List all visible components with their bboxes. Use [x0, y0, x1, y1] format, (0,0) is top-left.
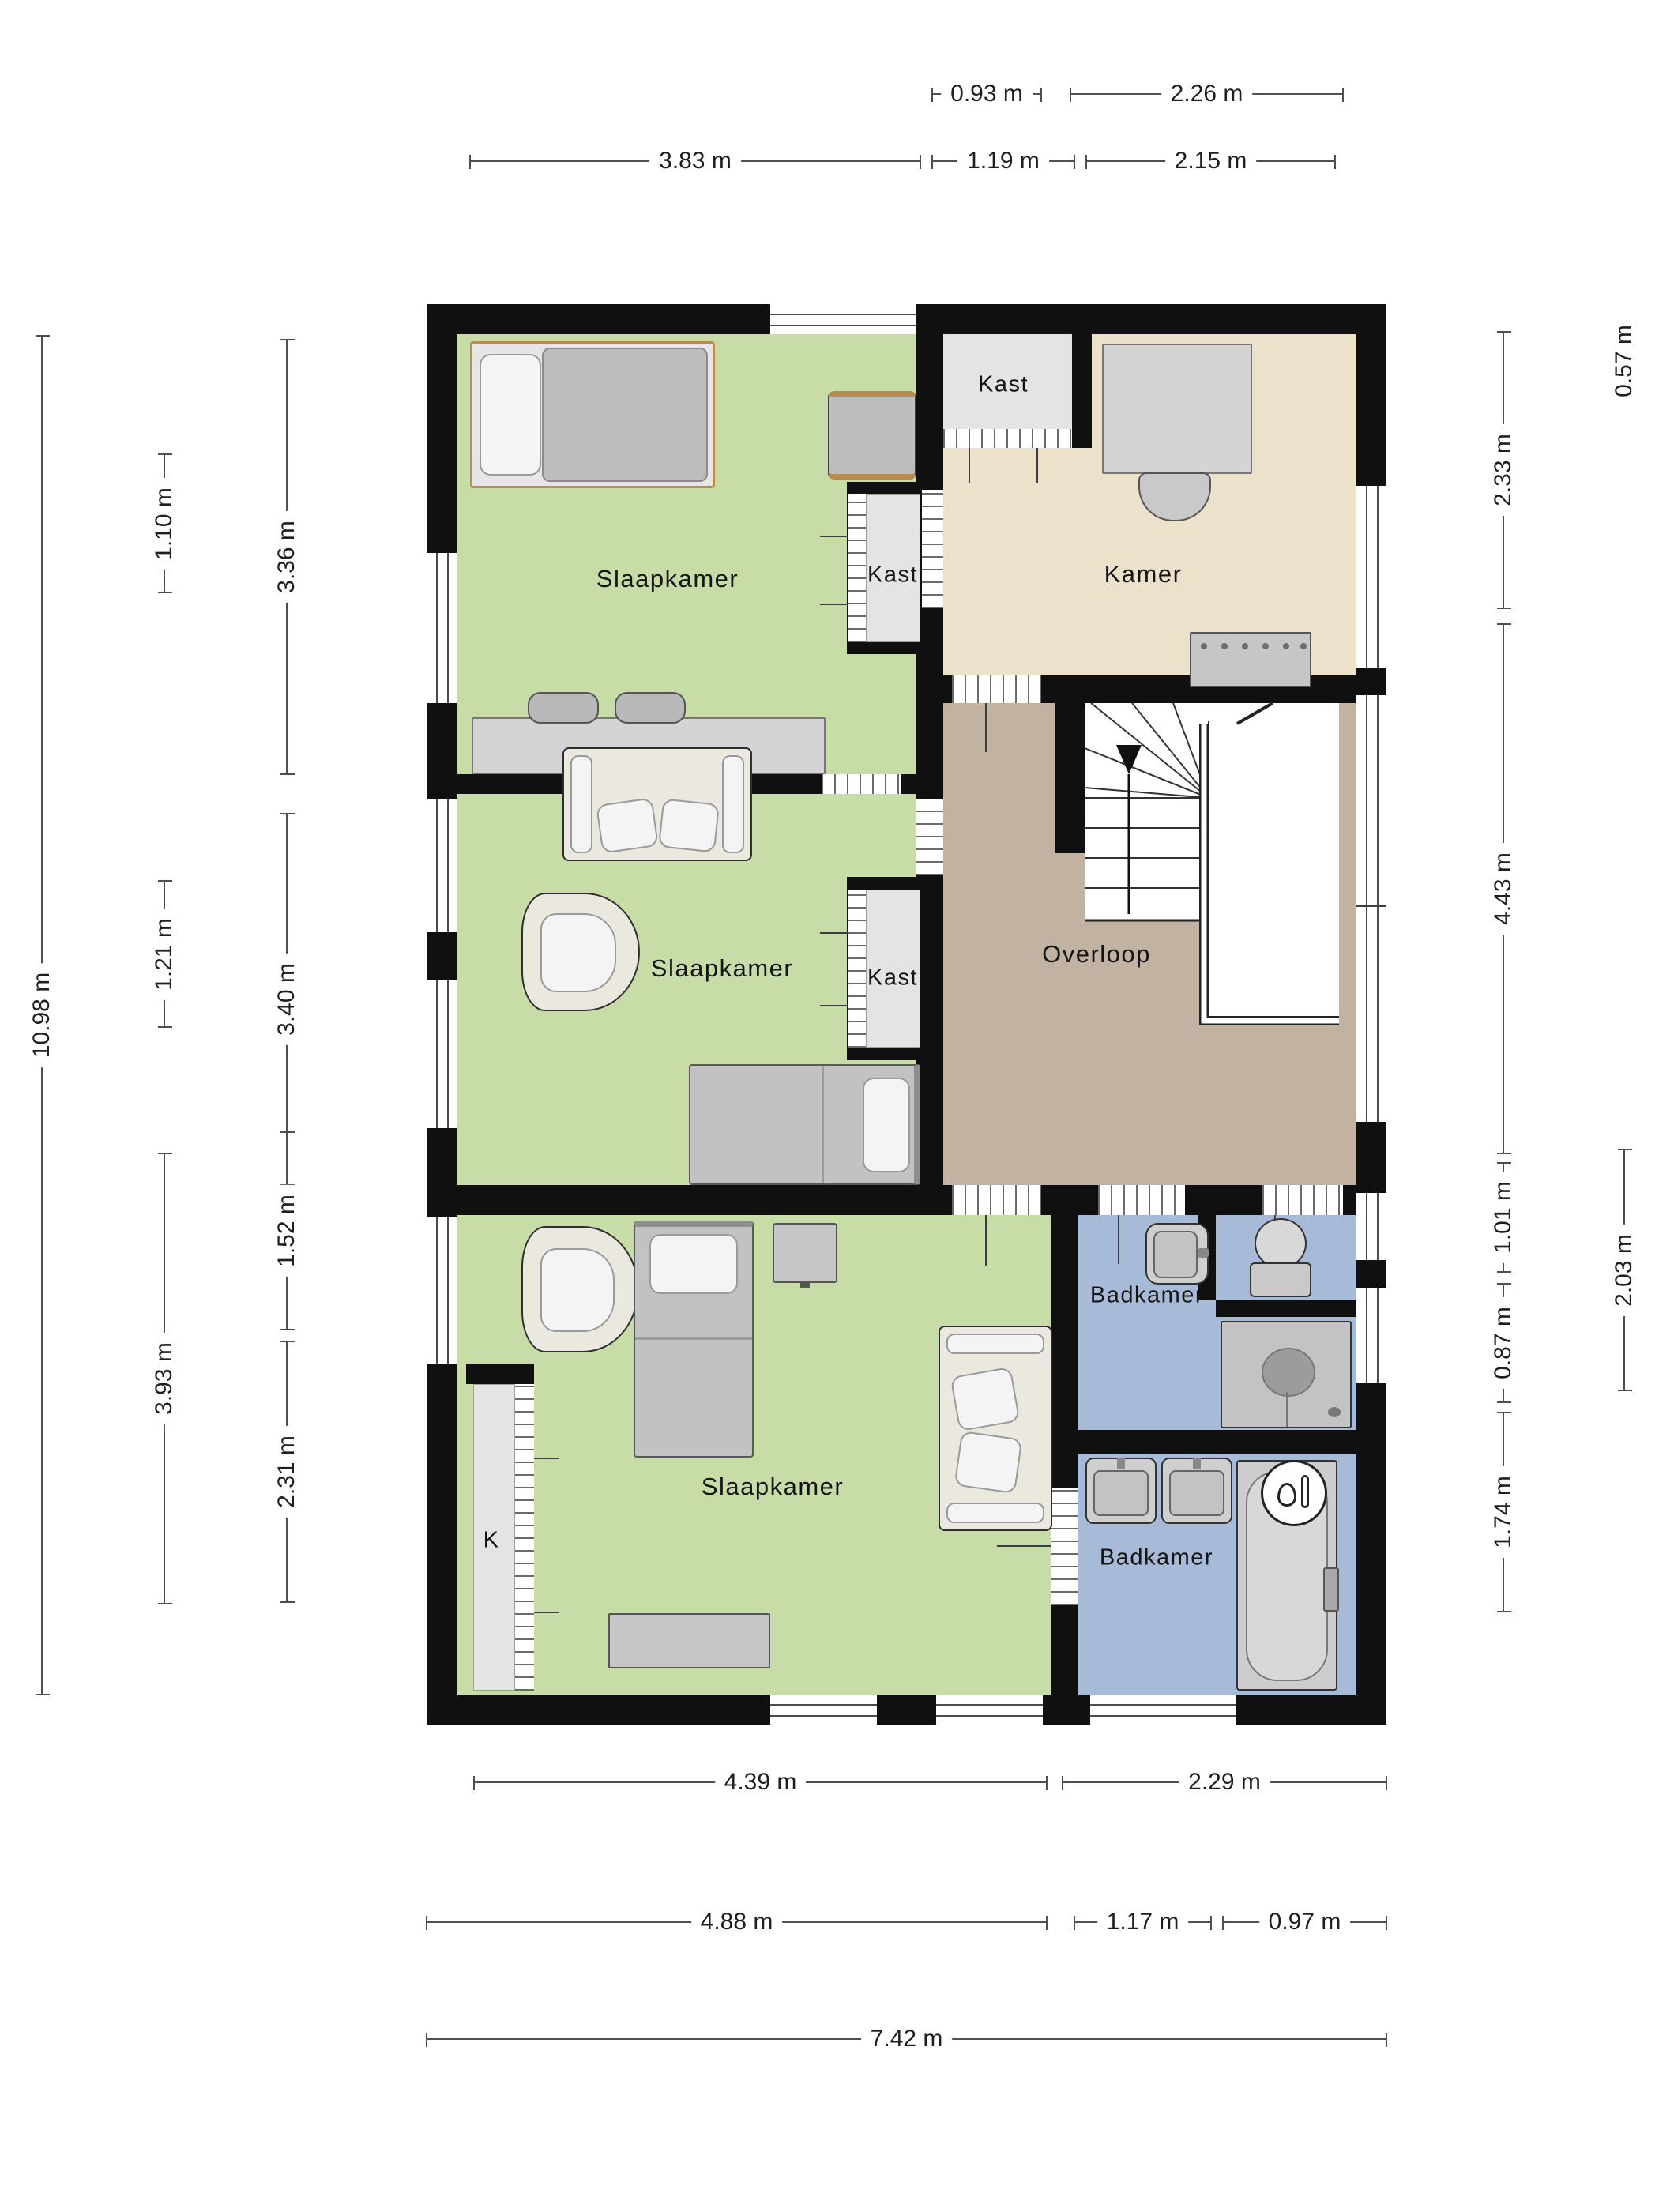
bed1-pillow [480, 354, 541, 476]
dim-1-10: 1.10 m [164, 454, 165, 592]
k-closet-door [515, 1384, 534, 1691]
dim-4-88: 4.88 m [427, 1921, 1047, 1923]
toilet-bowl [1255, 1218, 1307, 1269]
dim-2-33: 2.33 m [1503, 332, 1504, 608]
dim-2-29: 2.29 m [1063, 1781, 1386, 1783]
dim-10-98: 10.98 m [41, 336, 43, 1695]
dim-1-01: 1.01 m [1503, 1163, 1504, 1272]
window-left-1 [427, 553, 457, 703]
dim-0-97: 0.97 m [1223, 1921, 1386, 1923]
window-top-slaapkamer1 [770, 304, 916, 334]
dim-4-43: 4.43 m [1503, 624, 1504, 1153]
dim-2-03: 2.03 m [1623, 1149, 1625, 1390]
dim-4-39: 4.39 m [474, 1781, 1047, 1783]
label-slaapkamer1: Slaapkamer [596, 565, 739, 593]
dim-3-83: 3.83 m [470, 160, 920, 162]
k-closet-tick-2 [534, 1612, 559, 1613]
sink-badkamer2-right [1161, 1458, 1232, 1524]
label-overloop: Overloop [1042, 940, 1151, 969]
door-slaapkamer3 [952, 1185, 1041, 1215]
window-bottom-2 [936, 1695, 1043, 1725]
k-closet-tick-1 [534, 1458, 559, 1459]
staircase [1085, 699, 1339, 1031]
kast2-tick-2 [820, 1005, 848, 1006]
window-right-overloop [1356, 695, 1386, 1122]
door-badkamer2 [1051, 1488, 1078, 1605]
door-tick-kamer [985, 703, 987, 752]
wall-stub-stairs [1055, 703, 1085, 853]
door-tick-badkamer1 [1118, 1215, 1119, 1264]
label-badkamer1: Badkamer [1090, 1283, 1204, 1309]
bed3-pillow [649, 1234, 738, 1294]
window-right-overloop-divider [1356, 905, 1386, 907]
window-right-toilet [1356, 1193, 1386, 1260]
window-right-shower [1356, 1288, 1386, 1382]
dresser-slaapkamer3 [608, 1613, 770, 1668]
window-bottom-3 [1090, 1695, 1236, 1725]
thermostat-icon [1261, 1460, 1327, 1526]
floor-plan: Slaapkamer Kast Kast Kamer Slaapkamer Ka… [0, 0, 1659, 2212]
desk-kamer [1102, 344, 1252, 474]
toilet-tank [1250, 1262, 1311, 1297]
kast1-tick-1 [820, 536, 848, 537]
bed2-pillow [863, 1078, 910, 1172]
label-kast1: Kast [867, 562, 918, 589]
dim-0-57: 0.57 m [1623, 322, 1625, 399]
shower-tray [1221, 1321, 1352, 1428]
label-kast2: Kast [867, 965, 918, 991]
dim-3-36: 3.36 m [286, 340, 288, 774]
label-kamer: Kamer [1104, 560, 1183, 589]
kast1-door [848, 494, 866, 642]
window-left-2 [427, 799, 457, 932]
desk1-chair-1 [528, 692, 599, 724]
nightstand-slaapkamer3 [773, 1223, 837, 1283]
window-bottom-1 [770, 1695, 877, 1725]
dim-1-21: 1.21 m [164, 881, 165, 1027]
dim-1-17: 1.17 m [1074, 1921, 1211, 1923]
dim-2-31: 2.31 m [286, 1341, 288, 1602]
label-kast-top: Kast [978, 372, 1029, 398]
door-slaapkamer2 [916, 799, 943, 875]
dresser-kamer [1190, 632, 1311, 687]
door-kamer [952, 675, 1041, 703]
dim-0-87: 0.87 m [1503, 1284, 1504, 1402]
wall-toilet-bottom [1216, 1300, 1356, 1317]
armchair-slaapkamer3 [521, 1226, 638, 1352]
armchair-slaapkamer2 [521, 893, 640, 1011]
kast1-tick-2 [820, 604, 848, 605]
wall-stub-kast-top [1072, 334, 1092, 448]
dim-3-40: 3.40 m [286, 814, 288, 1185]
kast2-door [848, 890, 866, 1048]
sink-badkamer1 [1145, 1223, 1209, 1285]
dim-7-42: 7.42 m [427, 2038, 1386, 2040]
window-left-3 [427, 980, 457, 1128]
dim-1-19: 1.19 m [932, 160, 1074, 162]
chair-slaapkamer1 [828, 391, 916, 480]
dim-0-93: 0.93 m [932, 93, 1041, 95]
kast-top-tick-1 [969, 448, 970, 483]
dim-1-74: 1.74 m [1503, 1413, 1504, 1612]
dim-2-15: 2.15 m [1086, 160, 1335, 162]
label-k-closet: K [483, 1528, 500, 1554]
desk1-chair-2 [615, 692, 686, 724]
sink-badkamer2-left [1085, 1458, 1157, 1524]
dim-2-26: 2.26 m [1070, 93, 1343, 95]
label-badkamer2: Badkamer [1100, 1545, 1213, 1571]
door-toilet [1262, 1185, 1343, 1215]
window-left-4 [427, 1217, 457, 1364]
label-slaapkamer3: Slaapkamer [702, 1473, 844, 1501]
door-badkamer1 [1098, 1185, 1185, 1215]
label-slaapkamer2: Slaapkamer [651, 954, 793, 983]
kast-top-tick-2 [1036, 448, 1038, 483]
kast-top-front [943, 429, 1072, 448]
dim-3-93: 3.93 m [164, 1153, 165, 1604]
door-tick-badkamer2 [997, 1545, 1051, 1547]
bed1-blanket [542, 348, 708, 482]
wall-stub-k-closet [466, 1364, 534, 1384]
kast2-tick-1 [820, 932, 848, 934]
sofa-slaapkamer3 [939, 1326, 1052, 1531]
door-slaapkamer1-2 [822, 774, 901, 794]
dim-1-52: 1.52 m [286, 1132, 288, 1330]
door-tick-slaapkamer3 [985, 1215, 987, 1266]
sofa-slaapkamer2 [562, 747, 752, 861]
window-right-kamer [1356, 486, 1386, 668]
